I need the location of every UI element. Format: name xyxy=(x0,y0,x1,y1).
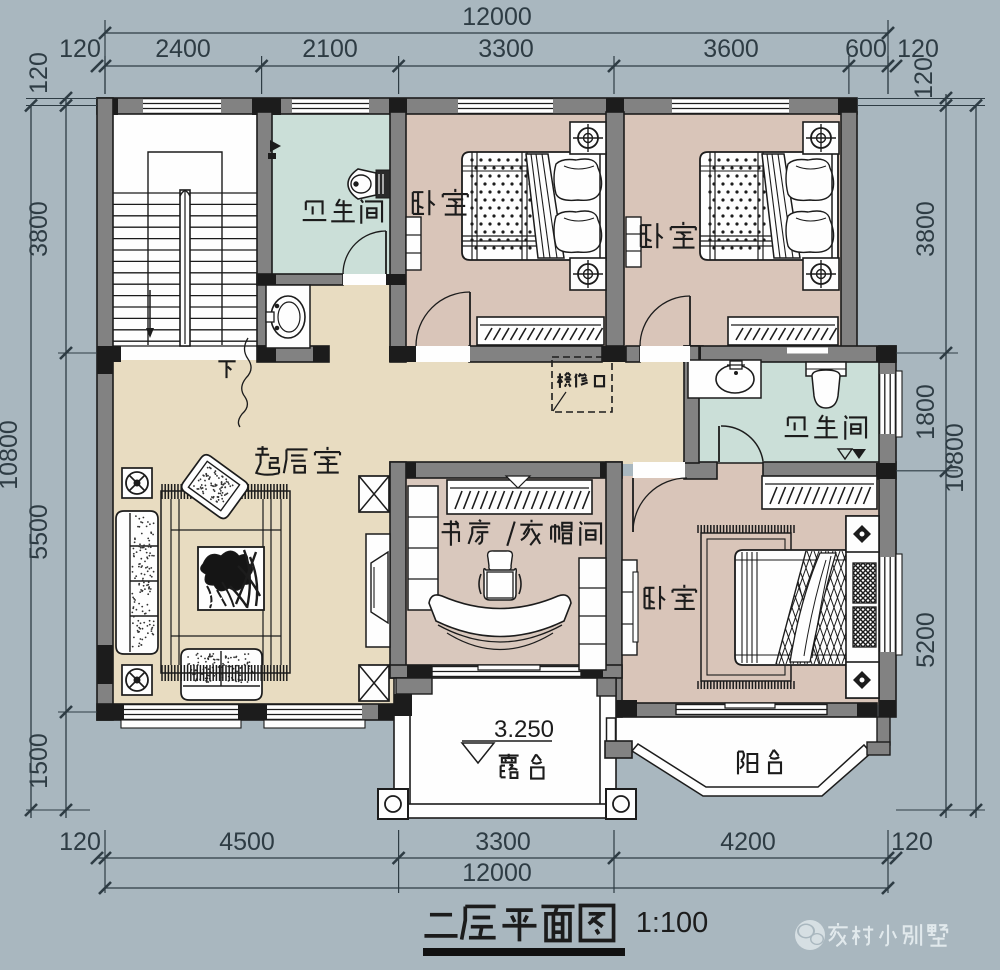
svg-text:120: 120 xyxy=(910,57,938,99)
svg-text:3300: 3300 xyxy=(475,828,531,856)
svg-text:600: 600 xyxy=(845,35,887,63)
svg-text:4500: 4500 xyxy=(219,828,275,856)
svg-text:1500: 1500 xyxy=(25,733,53,789)
svg-text:12000: 12000 xyxy=(462,3,532,31)
svg-text:3800: 3800 xyxy=(912,201,940,257)
svg-text:3300: 3300 xyxy=(478,35,534,63)
svg-text:3800: 3800 xyxy=(25,201,53,257)
svg-text:120: 120 xyxy=(891,828,933,856)
svg-text:3600: 3600 xyxy=(703,35,759,63)
svg-text:3.250: 3.250 xyxy=(494,716,554,743)
svg-text:2100: 2100 xyxy=(302,35,358,63)
svg-text:5500: 5500 xyxy=(25,504,53,560)
svg-text:120: 120 xyxy=(25,52,53,94)
svg-text:120: 120 xyxy=(59,828,101,856)
svg-text:120: 120 xyxy=(59,35,101,63)
svg-text:2400: 2400 xyxy=(155,35,211,63)
svg-text:12000: 12000 xyxy=(462,859,532,887)
svg-text:4200: 4200 xyxy=(720,828,776,856)
svg-text:1800: 1800 xyxy=(912,384,940,440)
svg-text:10800: 10800 xyxy=(941,423,969,493)
svg-text:1:100: 1:100 xyxy=(636,907,709,939)
svg-text:5200: 5200 xyxy=(912,612,940,668)
svg-text:10800: 10800 xyxy=(0,420,23,490)
